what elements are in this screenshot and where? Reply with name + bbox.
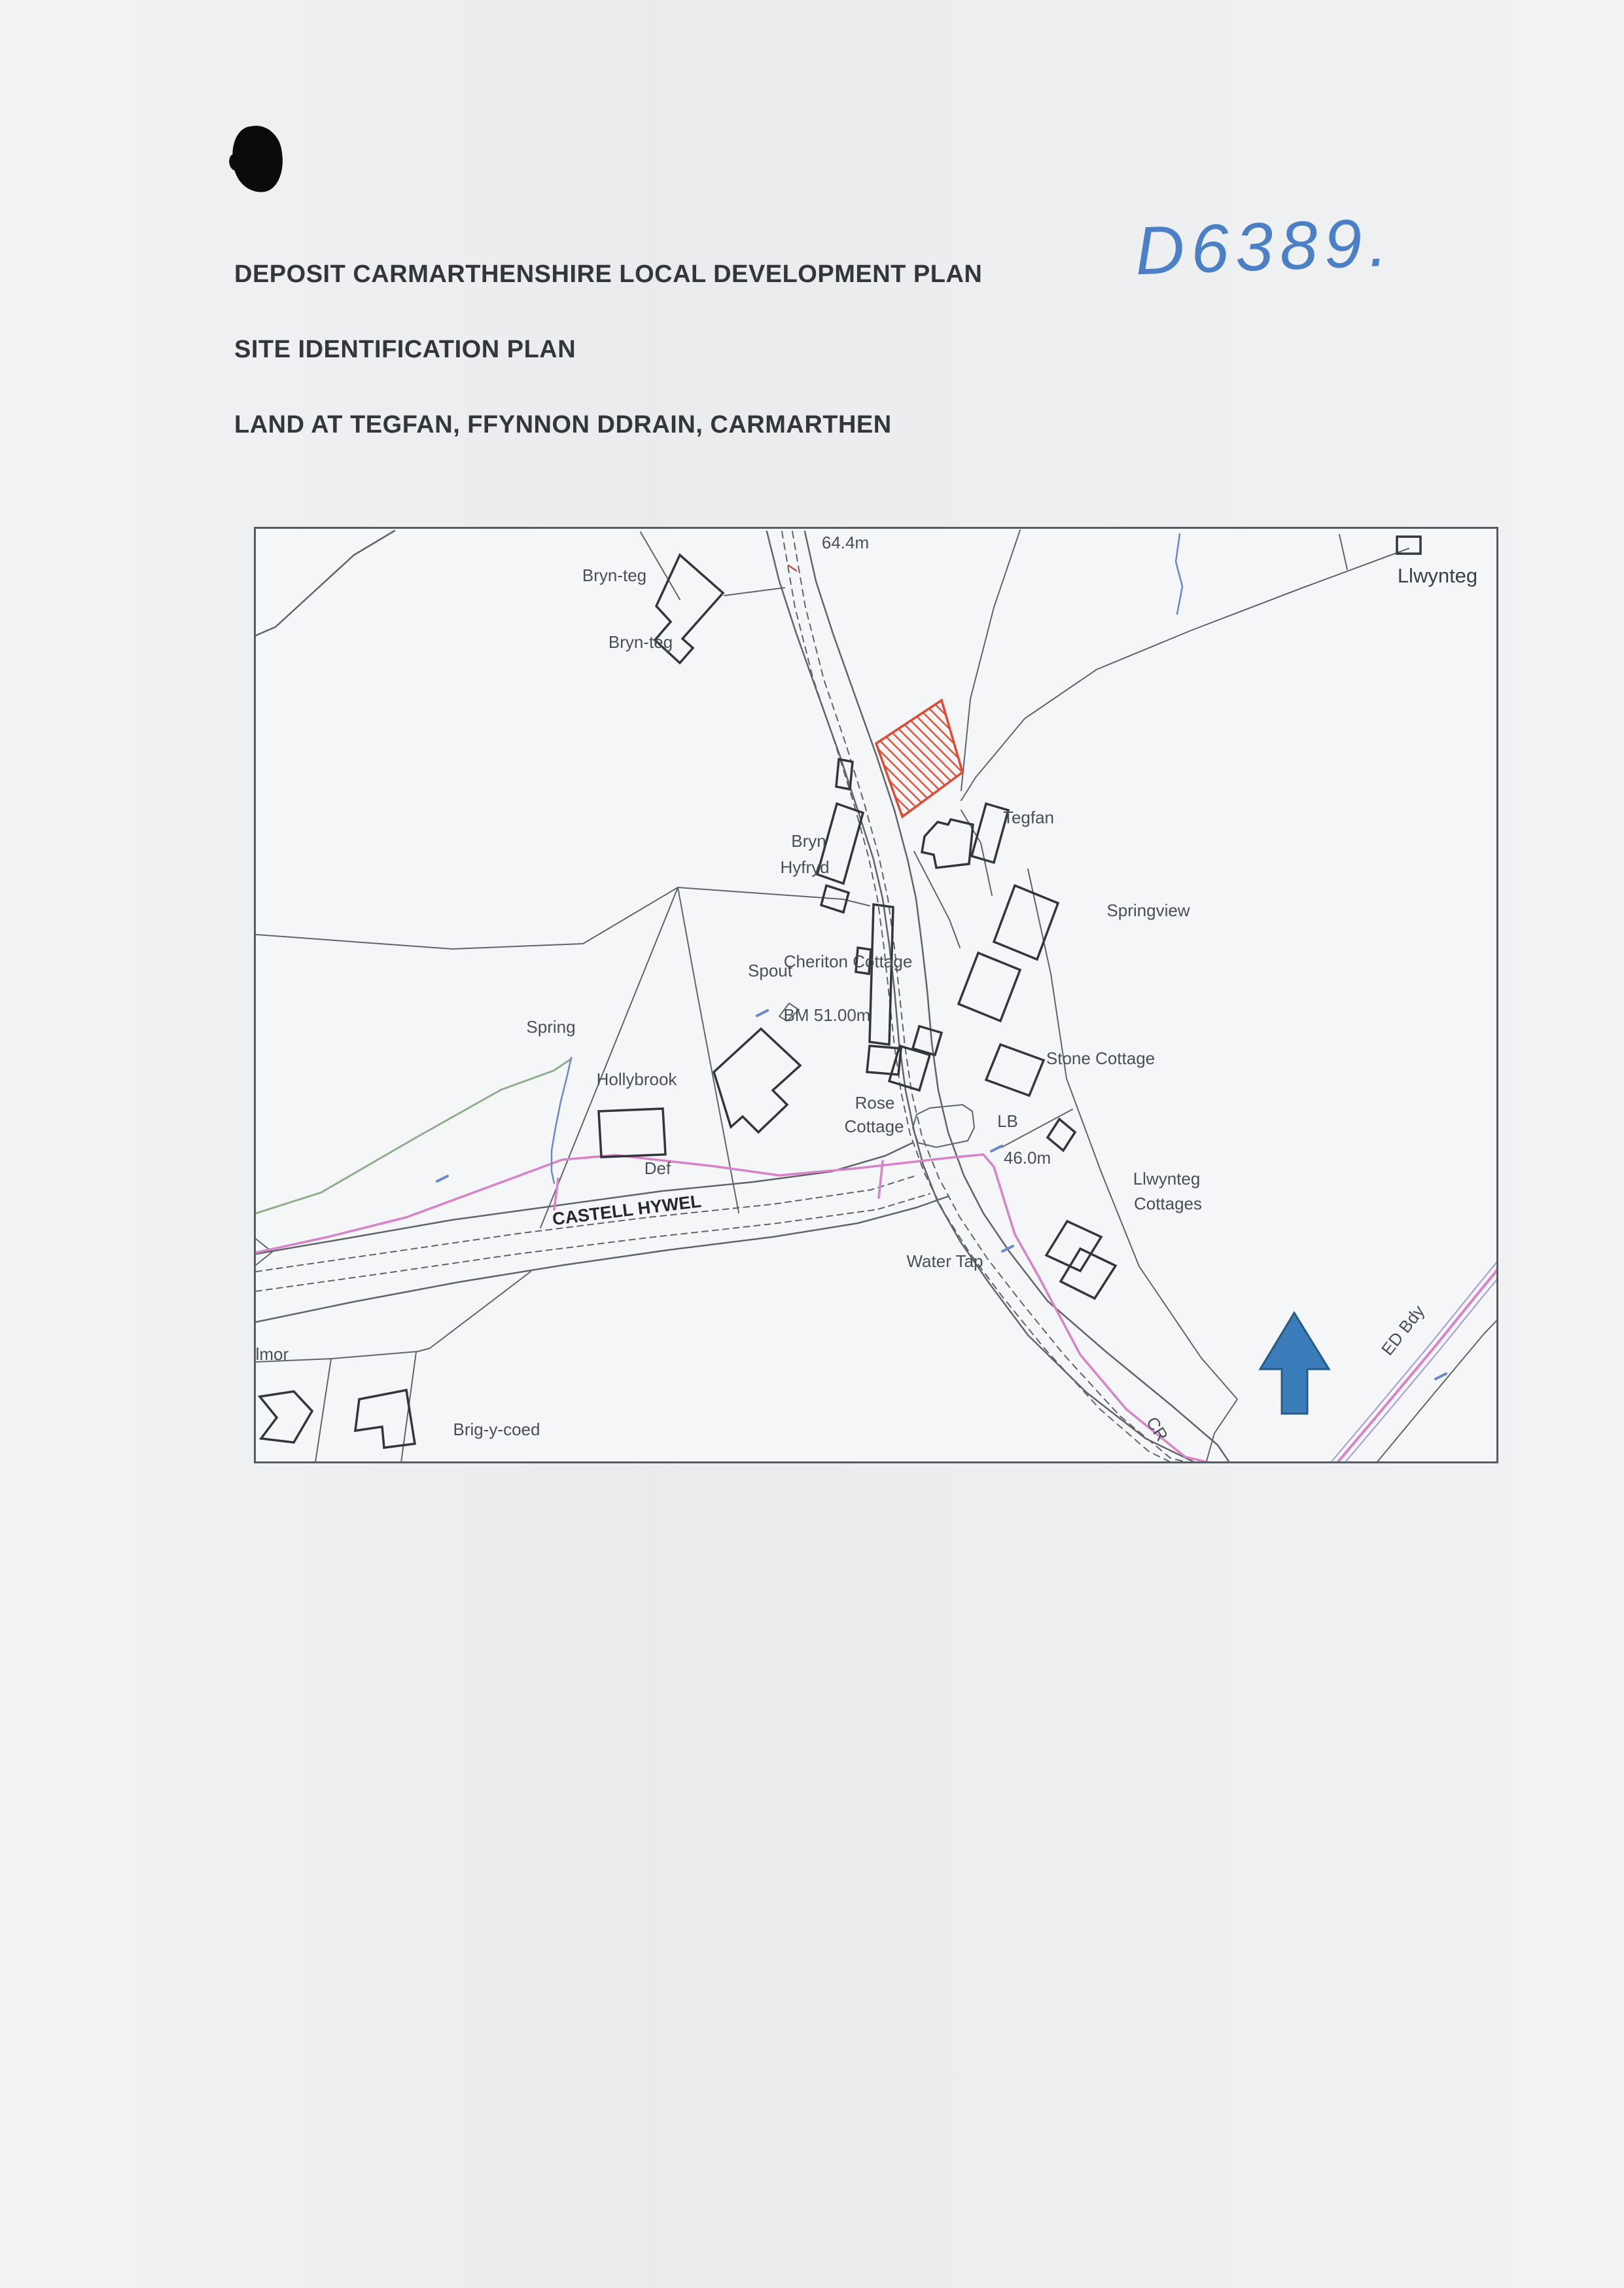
map-label: Cottage — [844, 1117, 904, 1136]
map-line — [430, 1272, 531, 1348]
map-building — [355, 1390, 415, 1448]
map-label: Hollybrook — [597, 1069, 678, 1089]
map-building — [922, 819, 973, 868]
blue-mark-icon — [437, 1176, 448, 1181]
map-line — [792, 531, 1192, 1461]
map-line — [961, 548, 1409, 800]
map-label: Water Tap — [906, 1251, 983, 1271]
map-line — [961, 530, 1020, 791]
map-label: Cottages — [1134, 1194, 1202, 1213]
map-line — [552, 1058, 571, 1183]
map-label: ED Bdy — [1377, 1301, 1428, 1359]
blue-mark-icon — [1436, 1374, 1446, 1379]
map-label: Brig-y-coed — [453, 1420, 540, 1439]
map-label: Bryn-teg — [609, 632, 673, 652]
title-line-3: LAND AT TEGFAN, FFYNNON DDRAIN, CARMARTH… — [234, 411, 1085, 439]
map-label: Spring — [526, 1017, 575, 1037]
site-plan-svg: 64.4mBryn-tegBryn-tegLlwyntegTegfanBrynH… — [256, 529, 1496, 1461]
map-label: Cheriton Cottage — [784, 952, 913, 971]
map-label: Bryn — [791, 831, 826, 851]
map-label: llmor — [256, 1344, 289, 1364]
map-line — [1067, 1079, 1237, 1461]
map-label: CASTELL HYWEL — [551, 1191, 702, 1229]
map-label: Llwynteg — [1133, 1169, 1201, 1189]
map-line — [256, 1154, 1212, 1461]
map-line — [1332, 1259, 1496, 1461]
map-building — [714, 1029, 800, 1132]
map-line — [1028, 869, 1067, 1079]
map-label: Def — [644, 1158, 671, 1178]
north-arrow-icon — [1260, 1313, 1329, 1414]
site-boundary — [876, 700, 962, 817]
map-building — [1046, 1221, 1101, 1271]
map-line — [256, 887, 678, 949]
map-line — [724, 588, 785, 596]
map-label: 46.0m — [1004, 1148, 1051, 1168]
map-line — [1337, 1267, 1496, 1461]
map-building — [994, 885, 1058, 959]
blue-mark-icon — [991, 1146, 1002, 1151]
map-line — [1342, 1276, 1496, 1461]
map-label: Hyfryd — [780, 857, 829, 877]
map-label: Tegfan — [1003, 808, 1054, 827]
document-header: DEPOSIT CARMARTHENSHIRE LOCAL DEVELOPMEN… — [234, 260, 1085, 486]
handwritten-reference: D6389. — [1134, 204, 1411, 291]
map-label: 64.4m — [822, 533, 869, 552]
site-plan-map: 64.4mBryn-tegBryn-tegLlwyntegTegfanBrynH… — [254, 527, 1498, 1463]
map-building — [959, 953, 1020, 1021]
title-line-1: DEPOSIT CARMARTHENSHIRE LOCAL DEVELOPMEN… — [234, 260, 1085, 289]
map-label: Springview — [1106, 901, 1190, 920]
map-building — [986, 1045, 1044, 1096]
map-line — [788, 565, 796, 571]
map-building — [260, 1391, 312, 1442]
map-line — [256, 1059, 571, 1213]
map-line — [1176, 534, 1182, 614]
map-label: LB — [997, 1111, 1018, 1131]
blue-mark-icon — [757, 1010, 768, 1016]
map-building — [599, 1109, 665, 1157]
map-line — [256, 1143, 913, 1254]
map-label: Rose — [855, 1093, 895, 1113]
map-label: BM 51.00m — [784, 1005, 871, 1025]
map-line — [256, 531, 395, 635]
map-label: Llwynteg — [1398, 564, 1477, 587]
map-building — [1048, 1119, 1075, 1151]
map-label: Bryn-teg — [582, 565, 646, 585]
map-label: Stone Cottage — [1046, 1048, 1155, 1068]
map-line — [767, 531, 1197, 1461]
map-line — [1339, 535, 1347, 569]
map-line — [315, 1359, 331, 1461]
map-building — [913, 1026, 942, 1055]
title-line-2: SITE IDENTIFICATION PLAN — [234, 336, 1085, 364]
